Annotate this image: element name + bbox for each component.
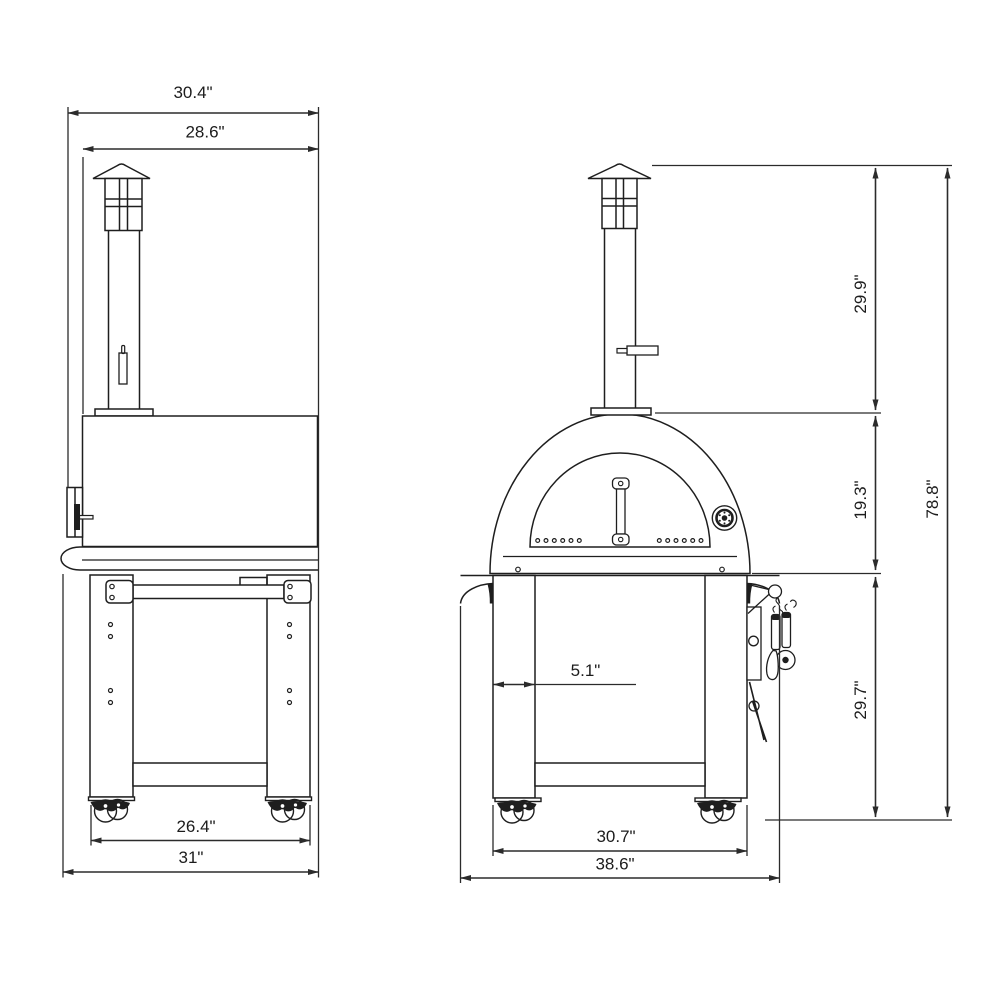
oven-tools — [747, 585, 796, 743]
dim-chimney-height-label: 29.9" — [851, 274, 870, 313]
dim-oven-height-label: 19.3" — [851, 480, 870, 519]
front-chimney-cap — [588, 164, 651, 179]
side-damper-handle — [119, 353, 127, 384]
side-caster-rear — [266, 797, 312, 822]
tool-scoop — [767, 651, 779, 680]
front-chimney-box — [602, 179, 637, 229]
dim-leg-width-label: 5.1" — [571, 661, 601, 680]
dim-overall-width-label: 38.6" — [595, 855, 634, 874]
side-door-handle — [75, 505, 80, 530]
dim-side-base-depth-label: 31" — [179, 848, 204, 867]
front-view — [461, 164, 797, 823]
dim-side-overall-depth-label: 30.4" — [173, 83, 212, 102]
drawing-page: 30.4" 28.6" 26.4" 31" — [0, 0, 1000, 1000]
side-leg-holes — [109, 623, 292, 705]
side-oven-body — [83, 416, 318, 547]
front-damper-handle — [627, 346, 658, 355]
hanger-knob — [769, 585, 782, 598]
side-chimney — [93, 164, 153, 416]
side-caster-front — [89, 797, 135, 822]
side-chimney-box — [105, 179, 142, 231]
front-chimney-flange — [591, 408, 651, 415]
side-table-top — [61, 547, 318, 570]
side-leg-front — [90, 575, 133, 797]
peel-handle — [750, 682, 767, 742]
front-lower-shelf — [535, 763, 705, 786]
dim-stand-height-label: 29.7" — [851, 680, 870, 719]
dim-leg-span-label: 30.7" — [596, 827, 635, 846]
front-leg-right — [705, 576, 747, 799]
side-chimney-flange — [95, 409, 153, 416]
side-chimney-cap — [93, 164, 150, 179]
dim-side-body-depth-label: 28.6" — [185, 123, 224, 142]
side-lower-shelf — [133, 763, 267, 786]
thermometer-gauge — [712, 506, 736, 530]
front-chimney — [588, 164, 658, 408]
dim-side-caster-span-label: 26.4" — [176, 817, 215, 836]
front-caster-right — [695, 798, 741, 823]
dim-overall-height-label: 78.8" — [923, 479, 942, 518]
side-leg-rear — [267, 575, 310, 797]
front-chimney-pipe — [605, 229, 636, 409]
dimension-drawing: 30.4" 28.6" 26.4" 31" — [0, 0, 1000, 1000]
front-stand — [493, 576, 747, 824]
front-caster-left — [495, 798, 541, 823]
side-chimney-pipe — [109, 231, 140, 410]
front-leg-left — [493, 576, 535, 799]
side-view — [61, 164, 318, 822]
front-dome — [490, 408, 750, 574]
side-crossbar — [133, 585, 284, 599]
side-stand — [89, 575, 312, 822]
hanging-cord — [773, 598, 796, 614]
